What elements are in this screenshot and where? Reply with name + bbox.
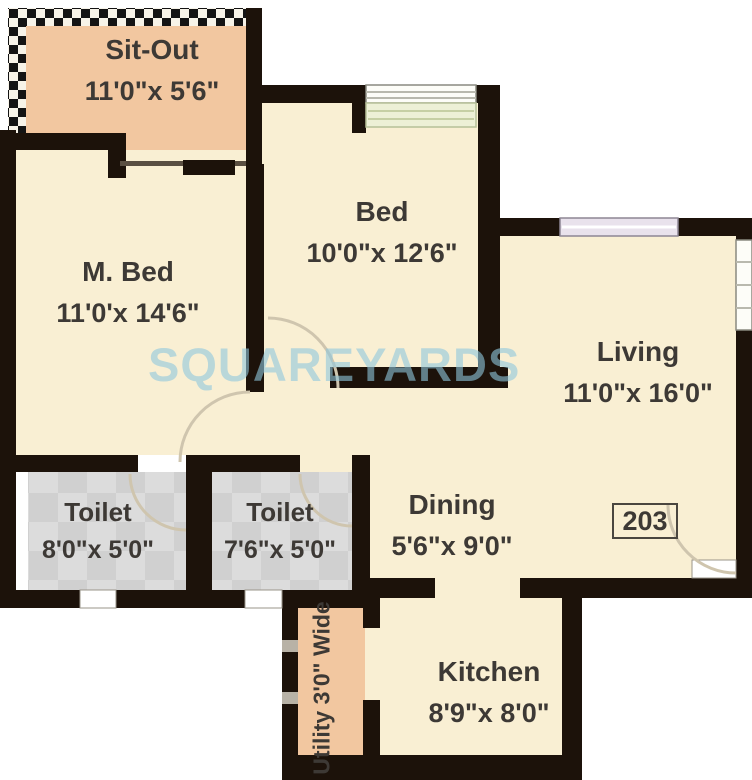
room-name: M. Bed — [56, 251, 199, 293]
room-name: Sit-Out — [85, 29, 220, 71]
utility-label: Utility 3'0" Wide — [309, 601, 336, 774]
room-label-dining: Dining 5'6"x 9'0" — [391, 484, 512, 567]
room-dimensions: 7'6"x 5'0" — [224, 532, 336, 570]
living-right-window — [736, 240, 752, 330]
room-label-living: Living 11'0"x 16'0" — [563, 331, 713, 414]
room-dimensions: 11'0'x 14'6" — [56, 293, 199, 334]
room-name: Living — [563, 331, 713, 373]
room-label-toilet2: Toilet 7'6"x 5'0" — [224, 493, 336, 570]
room-dimensions: 11'0"x 16'0" — [563, 373, 713, 414]
railing-top — [8, 8, 262, 26]
room-label-sitout: Sit-Out 11'0"x 5'6" — [85, 29, 220, 112]
utility-vent-1 — [282, 640, 298, 652]
watermark: SQUAREYARDS — [148, 337, 520, 392]
room-label-toilet1: Toilet 8'0"x 5'0" — [42, 493, 154, 570]
room-name: Toilet — [42, 493, 154, 532]
room-label-mbed: M. Bed 11'0'x 14'6" — [56, 251, 199, 334]
bed-window — [366, 85, 476, 127]
room-dimensions: 10'0"x 12'6" — [306, 233, 457, 274]
room-name: Dining — [391, 484, 512, 526]
room-name: Kitchen — [428, 651, 549, 693]
living-top-window — [560, 218, 678, 236]
unit-number-badge: 203 — [612, 503, 678, 539]
room-dimensions: 5'6"x 9'0" — [391, 526, 512, 567]
room-label-kitchen: Kitchen 8'9"x 8'0" — [428, 651, 549, 734]
room-label-bed: Bed 10'0"x 12'6" — [306, 191, 457, 274]
utility-vent-2 — [282, 692, 298, 704]
room-dimensions: 8'9"x 8'0" — [428, 693, 549, 734]
railing-left — [8, 8, 26, 148]
room-name: Toilet — [224, 493, 336, 532]
room-name: Bed — [306, 191, 457, 233]
room-dimensions: 11'0"x 5'6" — [85, 71, 220, 112]
toilet2-vent-sill — [245, 590, 282, 608]
floorplan: SQUAREYARDS Sit-Out 11'0"x 5'6" M. Bed 1… — [0, 0, 752, 780]
room-dimensions: 8'0"x 5'0" — [42, 532, 154, 570]
toilet1-vent-sill — [80, 590, 116, 608]
